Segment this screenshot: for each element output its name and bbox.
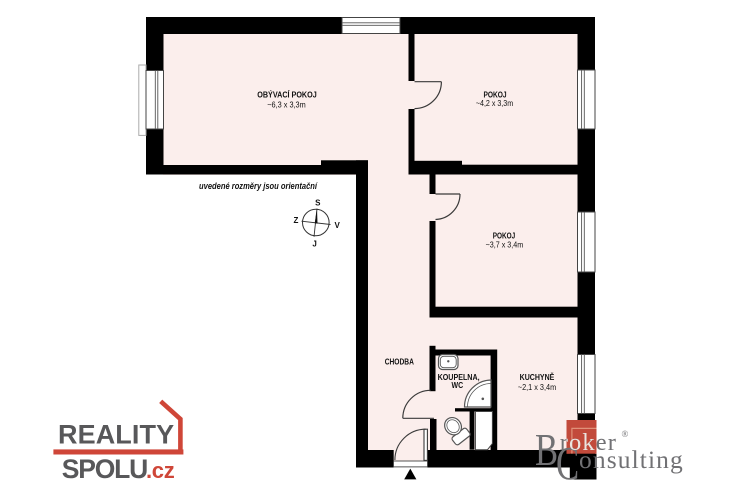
svg-text:CHODBA: CHODBA — [385, 357, 414, 366]
svg-text:uvedené rozměry jsou orientačn: uvedené rozměry jsou orientační — [199, 181, 318, 191]
svg-text:KUCHYNĚ: KUCHYNĚ — [520, 373, 555, 382]
svg-text:®: ® — [622, 429, 629, 439]
svg-text:J: J — [312, 240, 316, 249]
svg-text:B: B — [535, 424, 558, 475]
svg-text:SPOLU: SPOLU — [62, 454, 147, 484]
svg-text:WC: WC — [452, 381, 464, 390]
svg-text:V: V — [335, 221, 341, 230]
svg-text:REALITY: REALITY — [58, 420, 174, 450]
svg-text:.cz: .cz — [146, 458, 175, 483]
svg-text:OBÝVACÍ POKOJ: OBÝVACÍ POKOJ — [257, 91, 317, 100]
svg-text:Z: Z — [294, 216, 299, 225]
svg-text:~3,7 x 3,4m: ~3,7 x 3,4m — [486, 240, 524, 250]
svg-text:S: S — [315, 199, 321, 208]
svg-text:~4,2 x 3,3m: ~4,2 x 3,3m — [476, 98, 513, 108]
svg-text:~6,3 x 3,3m: ~6,3 x 3,3m — [267, 99, 306, 109]
svg-text:~2,1 x 3,4m: ~2,1 x 3,4m — [518, 382, 556, 392]
